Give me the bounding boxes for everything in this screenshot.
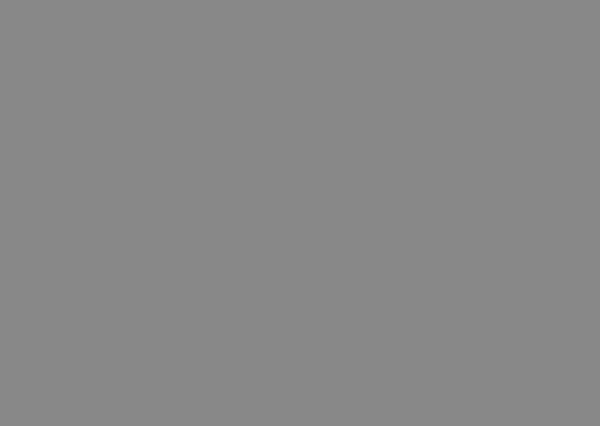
beijing-map-screenshot [0,0,600,426]
beijing-city-map [0,0,600,426]
